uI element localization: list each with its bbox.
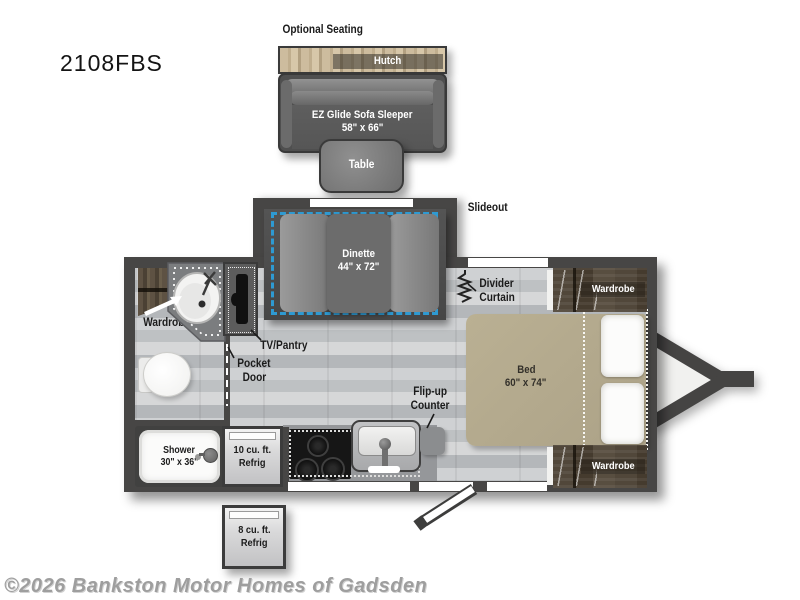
divider-curtain-label: Divider Curtain <box>477 277 517 305</box>
front-wall-window <box>468 258 548 267</box>
optional-seating-label: Optional Seating <box>277 24 368 38</box>
sofa-label: EZ Glide Sofa Sleeper 58" x 66" <box>280 107 445 137</box>
hutch-label: Hutch <box>374 55 401 68</box>
slideout-window <box>310 199 413 207</box>
shower-head-arm <box>199 453 205 456</box>
vanity-sink <box>166 261 228 343</box>
fridge-8-top <box>229 511 279 519</box>
dealer-watermark: ©2026 Bankston Motor Homes of Gadsden <box>4 575 427 598</box>
pocket-door-panel <box>226 344 228 406</box>
entry-door-swing <box>417 489 474 526</box>
kitchen-window <box>288 482 410 491</box>
hitch-tongue <box>718 371 754 387</box>
sink-tray <box>368 466 400 473</box>
tv-pantry-cabinet <box>223 262 258 336</box>
model-number: 2108FBS <box>60 50 163 77</box>
dinette-label: Dinette 44" x 72" <box>296 245 422 277</box>
pocket-door-label: Pocket Door <box>232 358 276 386</box>
hutch: Hutch <box>278 46 447 74</box>
shower-enclosure: Shower 30" x 36" <box>135 426 224 487</box>
fridge-8: 8 cu. ft. Refrig <box>222 505 286 569</box>
sofa-back-cushion-2 <box>290 91 435 105</box>
wardrobe-front-label-band: Wardrobe <box>581 459 645 474</box>
tv-pantry-label: TV/Pantry <box>257 340 311 354</box>
toilet <box>143 352 191 397</box>
tv-mount-icon <box>231 293 240 306</box>
dinette-slideout-floor: Dinette 44" x 72" <box>264 209 446 320</box>
shower-head-icon <box>203 448 218 463</box>
pocket-door-wall <box>224 334 230 429</box>
bed-pillow-top <box>601 315 644 377</box>
kitchen-sink <box>351 420 421 472</box>
entry-door-opening <box>419 482 473 491</box>
hutch-label-band: Hutch <box>333 54 443 69</box>
bed-label: Bed 60" x 74" <box>478 362 574 392</box>
fridge-10-top <box>229 432 276 440</box>
faucet-knob <box>379 438 391 450</box>
sink-drain <box>199 301 206 308</box>
floorplan-stage: 2108FBS Optional Seating Hutch EZ Glide … <box>0 0 800 600</box>
wardrobe-front-divider <box>573 445 576 488</box>
flip-up-counter <box>420 427 445 455</box>
flip-up-counter-label: Flip-up Counter <box>400 386 460 414</box>
wardrobe-rear: Wardrobe <box>553 268 647 312</box>
fridge-10: 10 cu. ft. Refrig <box>222 426 283 487</box>
rear-wall-window <box>487 482 547 491</box>
table-label: Table <box>349 159 375 173</box>
hitch-frame <box>640 320 765 445</box>
dinette-table-free: Table <box>319 139 404 193</box>
wardrobe-rear-label-band: Wardrobe <box>581 282 645 297</box>
wardrobe-rear-divider <box>573 268 576 312</box>
bed-pillow-bottom <box>601 383 644 444</box>
wardrobe-front: Wardrobe <box>553 445 647 488</box>
slideout-label: Slideout <box>465 202 510 216</box>
